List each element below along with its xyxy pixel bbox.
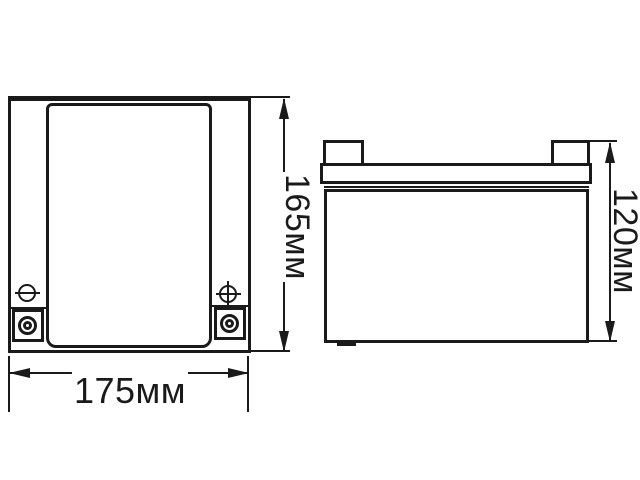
front-height-label: 165мм — [279, 172, 315, 282]
front-width-label: 175мм — [72, 372, 188, 410]
front-inner-panel — [46, 103, 212, 348]
side-lid-separator — [324, 186, 589, 188]
extension-line — [8, 356, 10, 412]
arrowhead-down-icon — [605, 321, 615, 342]
arrowhead-up-icon — [279, 98, 289, 119]
arrowhead-up-icon — [605, 142, 615, 163]
side-height-label: 120мм — [607, 186, 640, 296]
extension-line — [247, 356, 249, 412]
arrowhead-left-icon — [9, 368, 30, 378]
side-body — [324, 189, 589, 343]
side-foot-tab — [337, 341, 356, 346]
drawing-canvas: 165мм 175мм 120мм — [0, 0, 640, 480]
arrowhead-right-icon — [228, 368, 249, 378]
arrowhead-down-icon — [279, 331, 289, 352]
side-lid — [320, 163, 592, 184]
